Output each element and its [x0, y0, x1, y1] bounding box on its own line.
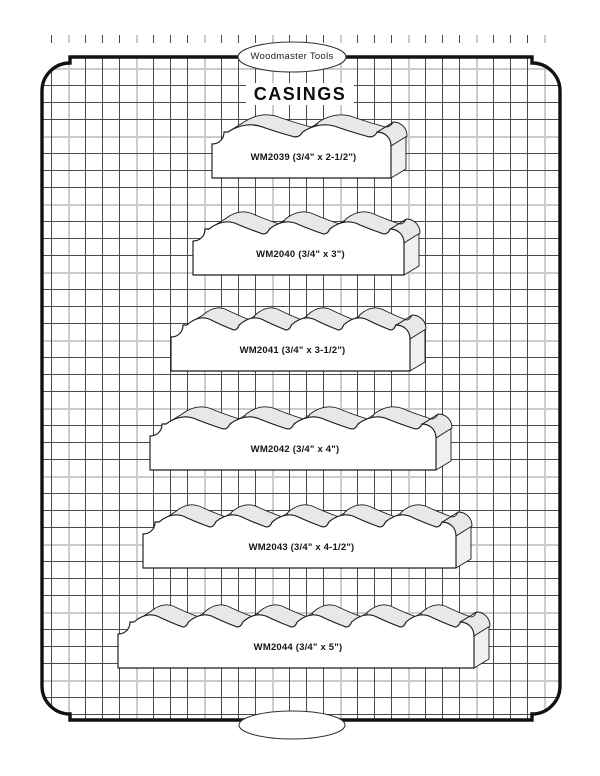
molding-label: WM2043 (3/4" x 4-1/2") — [143, 542, 460, 553]
molding-drawing-wm2043 — [141, 500, 474, 572]
footer-ellipse — [239, 711, 345, 739]
molding-label: WM2041 (3/4" x 3-1/2") — [171, 345, 414, 356]
molding-drawing-wm2040 — [191, 207, 422, 279]
molding-drawing-wm2042 — [148, 402, 454, 474]
molding-drawing-wm2044 — [116, 600, 492, 672]
molding-label: WM2039 (3/4" x 2-1/2") — [212, 152, 395, 163]
catalog-page: Woodmaster Tools CASINGS WM2039 (3/4" x … — [0, 0, 600, 776]
molding-drawing-wm2041 — [169, 303, 428, 375]
page-title: CASINGS — [0, 84, 600, 105]
molding-drawing-wm2039 — [210, 110, 409, 182]
molding-label: WM2044 (3/4" x 5") — [118, 642, 478, 653]
molding-label: WM2040 (3/4" x 3") — [193, 249, 408, 260]
molding-label: WM2042 (3/4" x 4") — [150, 444, 440, 455]
brand-name: Woodmaster Tools — [192, 51, 392, 62]
